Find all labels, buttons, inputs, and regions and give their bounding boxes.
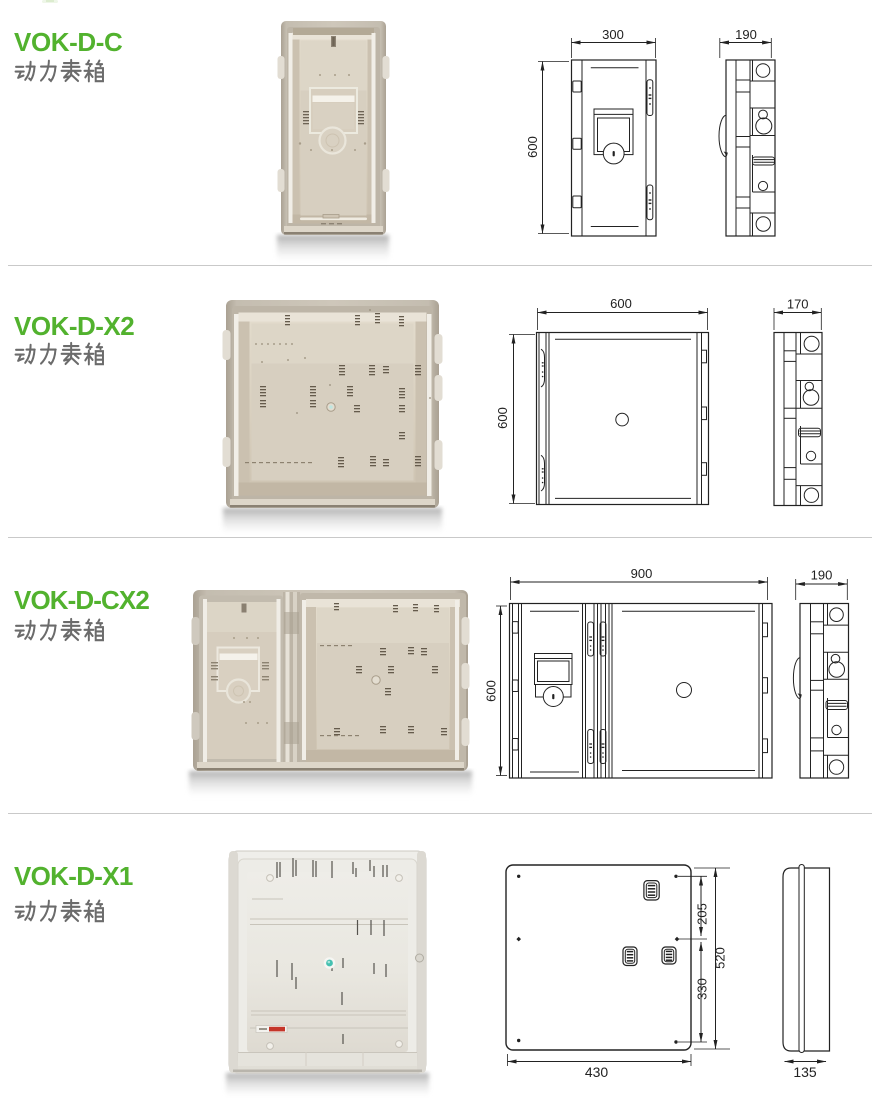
svg-text:430: 430 — [585, 1064, 609, 1080]
svg-text:520: 520 — [713, 947, 728, 969]
svg-text:900: 900 — [631, 566, 653, 581]
svg-text:190: 190 — [811, 568, 833, 583]
svg-text:300: 300 — [602, 27, 624, 42]
svg-text:330: 330 — [695, 978, 710, 1000]
svg-text:600: 600 — [484, 680, 499, 702]
svg-text:600: 600 — [495, 407, 510, 429]
svg-text:600: 600 — [610, 296, 632, 311]
svg-text:135: 135 — [793, 1064, 817, 1080]
svg-text:205: 205 — [695, 903, 710, 925]
svg-text:190: 190 — [735, 27, 757, 42]
svg-text:600: 600 — [525, 136, 540, 158]
svg-text:170: 170 — [787, 297, 809, 312]
